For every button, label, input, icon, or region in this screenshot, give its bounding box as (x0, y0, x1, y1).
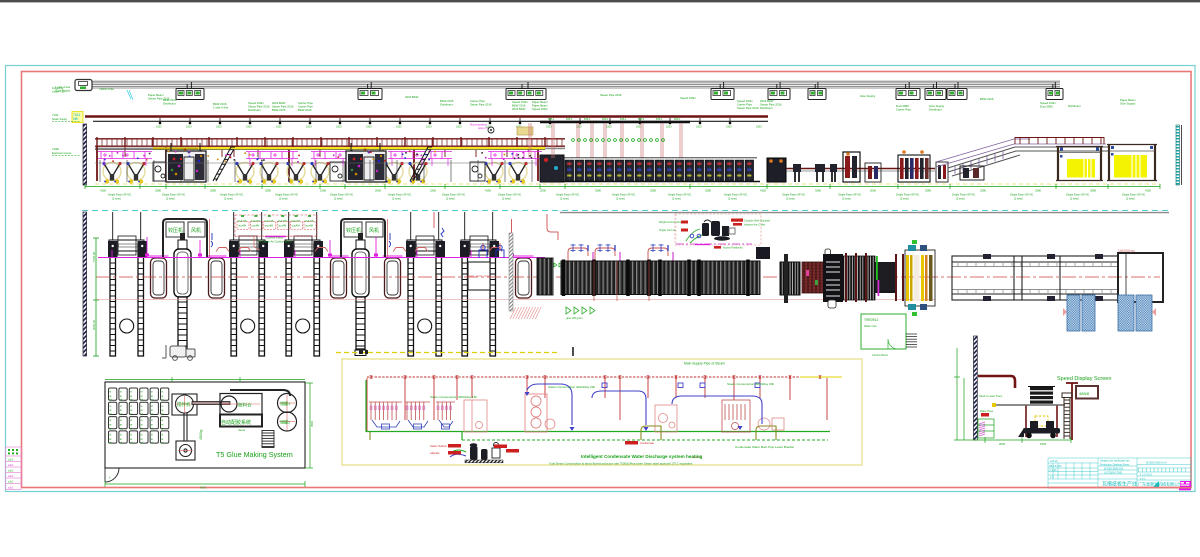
svg-text:Condensate: Condensate (640, 441, 655, 445)
svg-text:3280: 3280 (595, 189, 601, 193)
svg-text:Single Facer SF-NC: Single Facer SF-NC (952, 193, 975, 197)
svg-text:4150: 4150 (100, 189, 106, 193)
svg-text:st: st (141, 433, 143, 436)
svg-text:845.1: 845.1 (584, 117, 591, 121)
svg-text:Distributor: Distributor (929, 108, 942, 112)
svg-text:2000: 2000 (999, 442, 1006, 446)
svg-text:Advance line C side: Advance line C side (744, 224, 766, 227)
svg-text:2000: 2000 (870, 189, 876, 193)
svg-text:a1b2: a1b2 (8, 487, 14, 490)
svg-text:Adjuster: Adjuster (430, 451, 440, 455)
svg-text:Access Positioned: Access Positioned (723, 247, 743, 250)
svg-text:Equipment Layout: Equipment Layout (52, 152, 72, 155)
svg-text:1 2 3 4 5 6: 1 2 3 4 5 6 (1140, 474, 1152, 477)
svg-text:Single Facer SF-NC: Single Facer SF-NC (1066, 193, 1089, 197)
svg-text:Distributor: Distributor (248, 108, 261, 112)
svg-text:B&W 2016: B&W 2016 (980, 97, 994, 101)
svg-text:1503: 1503 (696, 126, 702, 129)
svg-text:4500: 4500 (310, 420, 314, 427)
svg-text:(2 sets): (2 sets) (446, 197, 455, 201)
svg-text:Water cool: Water cool (864, 324, 877, 328)
svg-text:a1b2: a1b2 (8, 464, 14, 467)
svg-text:T5 Glue Making System: T5 Glue Making System (216, 450, 293, 459)
svg-text:Single Facer SF-NC: Single Facer SF-NC (330, 193, 353, 197)
svg-text:Distributor: Distributor (163, 102, 176, 106)
svg-text:ar: ar (109, 395, 111, 398)
svg-text:st: st (130, 405, 132, 408)
svg-text:5050.66: 5050.66 (92, 319, 96, 330)
svg-text:Single Facer SF-NC: Single Facer SF-NC (1122, 193, 1145, 197)
svg-text:TRE0912: TRE0912 (864, 318, 878, 322)
svg-text:Single Facer SF-NC: Single Facer SF-NC (556, 193, 579, 197)
svg-text:3280: 3280 (980, 189, 986, 193)
svg-text:(2 sets): (2 sets) (1014, 197, 1023, 201)
svg-text:st: st (130, 433, 132, 436)
svg-text:845.1: 845.1 (656, 117, 663, 121)
svg-text:Steam Pipe 2016: Steam Pipe 2016 (737, 106, 759, 110)
svg-text:uuu4M: uuu4M (251, 224, 259, 228)
svg-text:Main Supply Pipe of Steam: Main Supply Pipe of Steam (684, 362, 725, 366)
svg-text:uuu4M: uuu4M (278, 224, 286, 228)
svg-text:Consider Wire Computer: Consider Wire Computer (744, 220, 771, 223)
svg-text:7168: 7168 (52, 147, 59, 151)
svg-text:uuu4M: uuu4M (305, 224, 313, 228)
svg-text:Water Hose: Water Hose (980, 410, 994, 413)
svg-text:Steam Consumption 4000t/day 20: Steam Consumption 4000t/day 20b (727, 382, 774, 386)
svg-text:1503: 1503 (726, 126, 732, 129)
svg-text:st: st (161, 419, 163, 422)
svg-text:st: st (151, 405, 153, 408)
svg-text:CHU78: CHU78 (264, 219, 273, 223)
svg-text:自动配胶系统: 自动配胶系统 (221, 419, 251, 426)
svg-text:铰压机: 铰压机 (346, 227, 361, 234)
svg-text:Steam Pipe 2016: Steam Pipe 2016 (600, 93, 622, 97)
svg-text:Single Facer SF-NC: Single Facer SF-NC (498, 193, 521, 197)
svg-text:5795.88: 5795.88 (92, 251, 96, 262)
svg-text:3280: 3280 (650, 189, 656, 193)
svg-text:铰压机: 铰压机 (168, 227, 183, 234)
svg-text:Single Facer SF-NC: Single Facer SF-NC (612, 193, 635, 197)
svg-text:1503: 1503 (426, 126, 432, 129)
svg-text:ar: ar (120, 409, 122, 412)
svg-text:9t/h: 9t/h (73, 117, 79, 121)
svg-text:Glue Supply: Glue Supply (1120, 102, 1136, 106)
svg-text:(2 sets): (2 sets) (112, 197, 121, 201)
svg-text:845.1: 845.1 (620, 117, 627, 121)
svg-text:Control Room: Control Room (266, 236, 284, 240)
svg-text:st: st (161, 433, 163, 436)
svg-text:845.1: 845.1 (674, 117, 681, 121)
svg-text:1503: 1503 (396, 126, 402, 129)
svg-text:(2 sets): (2 sets) (1126, 197, 1135, 201)
svg-text:glue 100 gram: glue 100 gram (566, 316, 583, 320)
svg-text:ar: ar (141, 424, 143, 427)
svg-text:2016 B&W: 2016 B&W (512, 107, 526, 111)
svg-text:1503: 1503 (276, 126, 282, 129)
svg-text:Single Facer SF-NC: Single Facer SF-NC (838, 193, 861, 197)
svg-text:st: st (141, 419, 143, 422)
svg-text:ar: ar (120, 438, 122, 441)
svg-text:3280: 3280 (705, 189, 711, 193)
svg-text:Intelligent Condensate Water D: Intelligent Condensate Water Discharge s… (581, 454, 703, 459)
svg-text:CHU78: CHU78 (278, 219, 287, 223)
svg-text:3280: 3280 (155, 189, 161, 193)
svg-text:WJ150-2500-150: WJ150-2500-150 (1104, 468, 1124, 471)
svg-text:Speed Display Screen: Speed Display Screen (1057, 376, 1111, 382)
svg-text:ar: ar (120, 424, 122, 427)
svg-text:ar: ar (109, 409, 111, 412)
svg-text:st: st (120, 419, 122, 422)
svg-text:ar: ar (141, 438, 143, 441)
svg-text:a1b2: a1b2 (8, 481, 14, 484)
svg-text:1503: 1503 (546, 126, 552, 129)
svg-text:瓦楷纸板生产线: 瓦楷纸板生产线 (1102, 481, 1137, 488)
svg-text:AB CD 123: AB CD 123 (1049, 465, 1062, 468)
svg-text:ar: ar (130, 424, 132, 427)
svg-text:1503: 1503 (456, 126, 462, 129)
svg-text:Supply List Line: Supply List Line (659, 229, 677, 232)
svg-text:a1b2: a1b2 (8, 459, 14, 462)
svg-text:(2 sets): (2 sets) (334, 197, 343, 201)
svg-text:2250: 2250 (430, 189, 436, 193)
svg-text:Single Facer SF-NC: Single Facer SF-NC (668, 193, 691, 197)
svg-text:广东省東光机械有限公司: 广东省東光机械有限公司 (1138, 481, 1182, 487)
svg-text:CHU78: CHU78 (238, 219, 247, 223)
svg-text:845.1: 845.1 (602, 117, 609, 121)
svg-text:st: st (109, 433, 111, 436)
svg-text:C 1 ab: C 1 ab (1049, 469, 1057, 472)
svg-text:Glue Supply: Glue Supply (860, 94, 876, 98)
svg-text:3280: 3280 (210, 189, 216, 193)
svg-text:(2 sets): (2 sets) (224, 197, 233, 201)
svg-text:Distributor: Distributor (1068, 104, 1081, 108)
svg-text:ar: ar (141, 409, 143, 412)
svg-text:Condensate Water Main Pipe Low: Condensate Water Main Pipe Lower Bracket (735, 445, 794, 449)
svg-text:ar: ar (151, 409, 153, 412)
svg-text:2000: 2000 (375, 189, 381, 193)
svg-text:a b c: a b c (1140, 478, 1146, 481)
svg-text:st: st (109, 405, 111, 408)
svg-text:No Gerber An Cushion Electri: No Gerber An Cushion Electri (258, 239, 292, 243)
svg-text:1503: 1503 (336, 126, 342, 129)
svg-text:st: st (151, 419, 153, 422)
svg-text:ar: ar (120, 395, 122, 398)
svg-text:4 4: 4 4 (1050, 476, 1054, 479)
svg-text:845.1: 845.1 (566, 117, 573, 121)
svg-text:ar: ar (109, 424, 111, 427)
svg-text:Speed 150m: Speed 150m (680, 96, 697, 100)
svg-text:Carrier Pipe: Carrier Pipe (99, 87, 114, 91)
svg-text:845.1: 845.1 (638, 117, 645, 121)
svg-text:ar: ar (161, 409, 163, 412)
svg-text:3280: 3280 (815, 189, 821, 193)
svg-text:uuu4M: uuu4M (238, 224, 246, 228)
svg-text:(2 sets): (2 sets) (842, 197, 851, 201)
svg-text:LSY2500-179/B: LSY2500-179/B (1104, 472, 1122, 475)
svg-text:st: st (141, 391, 143, 394)
svg-text:(2 sets): (2 sets) (166, 197, 175, 201)
svg-text:1500: 1500 (320, 189, 326, 193)
svg-text:ar: ar (151, 438, 153, 441)
svg-text:st: st (120, 433, 122, 436)
svg-text:Production Drawing Sheet: Production Drawing Sheet (1100, 463, 1129, 466)
svg-text:Single Facer SF-NC: Single Facer SF-NC (388, 193, 411, 197)
svg-text:uuu4M: uuu4M (292, 224, 300, 228)
svg-text:3280: 3280 (265, 189, 271, 193)
svg-text:(2 sets): (2 sets) (672, 197, 681, 201)
svg-text:2000: 2000 (540, 189, 546, 193)
svg-text:风机: 风机 (369, 227, 379, 234)
svg-text:Total Steam Consumption at abo: Total Steam Consumption at about 8tons/p… (549, 462, 693, 466)
svg-text:1503: 1503 (756, 126, 762, 129)
svg-text:st: st (120, 391, 122, 394)
svg-text:储罐1: 储罐1 (280, 400, 291, 406)
svg-text:(2 sets): (2 sets) (786, 197, 795, 201)
svg-text:ar: ar (141, 395, 143, 398)
svg-text:(2 sets): (2 sets) (279, 197, 288, 201)
svg-text:Distributor: Distributor (440, 103, 453, 107)
svg-text:st: st (151, 433, 153, 436)
svg-text:(2 sets): (2 sets) (502, 197, 511, 201)
svg-text:st: st (161, 391, 163, 394)
svg-text:B&W 2016: B&W 2016 (298, 108, 312, 112)
svg-text:Single Facer SF-NC: Single Facer SF-NC (896, 193, 919, 197)
svg-text:1503: 1503 (216, 126, 222, 129)
svg-text:1503: 1503 (606, 126, 612, 129)
svg-text:Single Facer SF-NC: Single Facer SF-NC (724, 193, 747, 197)
svg-text:Carrier Pipe: Carrier Pipe (896, 108, 911, 112)
svg-text:a1b2: a1b2 (8, 475, 14, 478)
svg-text:st: st (120, 405, 122, 408)
svg-text:1503: 1503 (156, 126, 162, 129)
svg-text:1503: 1503 (666, 126, 672, 129)
svg-text:st: st (109, 391, 111, 394)
svg-text:Distributor: Distributor (760, 106, 773, 110)
svg-text:ar: ar (161, 438, 163, 441)
svg-text:Duct 2850: Duct 2850 (1040, 105, 1053, 109)
svg-text:3280: 3280 (1035, 189, 1041, 193)
svg-text:Weight Control Valve: Weight Control Valve (659, 221, 682, 224)
svg-text:Carrier 7357: Carrier 7357 (52, 91, 66, 94)
svg-text:Single Facer SF-NC: Single Facer SF-NC (442, 193, 465, 197)
svg-text:3280: 3280 (925, 189, 931, 193)
svg-text:B&W 2016: B&W 2016 (272, 108, 286, 112)
svg-text:风机: 风机 (191, 227, 201, 234)
svg-text:uuu4M: uuu4M (265, 224, 273, 228)
svg-text:(2 sets): (2 sets) (728, 197, 737, 201)
svg-text:1503: 1503 (306, 126, 312, 129)
svg-text:st: st (130, 419, 132, 422)
svg-text:3280: 3280 (1090, 189, 1096, 193)
svg-text:a1b2: a1b2 (8, 470, 14, 473)
svg-text:CHU78: CHU78 (291, 219, 300, 223)
svg-text:Single Facer SF-NC: Single Facer SF-NC (220, 193, 243, 197)
svg-text:Jiangsu city cardboard sys: Jiangsu city cardboard sys (1100, 460, 1130, 463)
svg-text:Steam Consumption 4000t/day 20: Steam Consumption 4000t/day 20b (548, 385, 595, 389)
svg-text:ar: ar (151, 424, 153, 427)
svg-text:Single Facer SF-NC: Single Facer SF-NC (108, 193, 131, 197)
svg-text:搅拌机: 搅拌机 (177, 401, 191, 408)
svg-text:ar: ar (109, 438, 111, 441)
svg-text:st: st (161, 405, 163, 408)
svg-text:Speed 150m: Speed 150m (532, 107, 549, 111)
svg-text:st: st (130, 391, 132, 394)
svg-text:1400/52rpm: 1400/52rpm (1118, 249, 1135, 253)
svg-text:Hand to Lower Trans: Hand to Lower Trans (979, 395, 1003, 398)
svg-text:ar: ar (130, 395, 132, 398)
svg-text:1500: 1500 (1040, 442, 1047, 446)
svg-text:ar: ar (151, 395, 153, 398)
svg-text:Steam Pipe 2016: Steam Pipe 2016 (470, 103, 492, 107)
svg-text:st: st (151, 391, 153, 394)
svg-text:CHU78: CHU78 (305, 219, 314, 223)
svg-text:(2 sets): (2 sets) (1070, 197, 1079, 201)
svg-text:Steam Suction: Steam Suction (430, 444, 447, 448)
svg-text:(2 sets): (2 sets) (616, 197, 625, 201)
svg-text:1503: 1503 (186, 126, 192, 129)
svg-text:Single Facer SF-NC: Single Facer SF-NC (162, 193, 185, 197)
svg-text:4150: 4150 (760, 189, 766, 193)
svg-text:4150: 4150 (1145, 189, 1151, 193)
svg-text:845.1: 845.1 (548, 117, 555, 121)
svg-text:粉料仓: 粉料仓 (238, 402, 252, 409)
svg-text:(2 sets): (2 sets) (956, 197, 965, 201)
svg-text:ar: ar (161, 424, 163, 427)
svg-text:WJ150+2500+2+V: WJ150+2500+2+V (1146, 462, 1167, 465)
svg-text:1 side 4 feet: 1 side 4 feet (213, 106, 228, 110)
svg-text:Control Room: Control Room (872, 353, 888, 357)
svg-text:ar: ar (161, 395, 163, 398)
svg-text:Single Facer SF-NC: Single Facer SF-NC (275, 193, 298, 197)
svg-text:1503: 1503 (366, 126, 372, 129)
svg-text:A B ab: A B ab (1050, 460, 1058, 463)
svg-text:储罐2: 储罐2 (280, 419, 291, 425)
svg-text:st: st (109, 419, 111, 422)
svg-text:(2 sets): (2 sets) (560, 197, 569, 201)
svg-text:1503: 1503 (246, 126, 252, 129)
svg-text:4sets: 4sets (238, 428, 246, 432)
svg-text:4000kg: 4000kg (199, 429, 203, 440)
svg-text:CHU78: CHU78 (251, 219, 260, 223)
svg-text:ar: ar (130, 438, 132, 441)
svg-text:4150: 4150 (485, 189, 491, 193)
svg-text:Single Facer SF-NC: Single Facer SF-NC (782, 193, 805, 197)
svg-text:(2 sets): (2 sets) (392, 197, 401, 201)
svg-text:Steam Consumption 4000t/day 15: Steam Consumption 4000t/day 15b (430, 395, 477, 399)
svg-text:2016 B&W: 2016 B&W (405, 95, 419, 99)
svg-text:Single Facer SF-NC: Single Facer SF-NC (1010, 193, 1033, 197)
svg-text:7161: 7161 (52, 113, 59, 117)
svg-text:9000: 9000 (200, 486, 207, 490)
svg-text:ar: ar (130, 409, 132, 412)
svg-text:Steam Supply: Steam Supply (52, 118, 68, 121)
svg-text:485/8: 485/8 (1079, 391, 1090, 396)
svg-text:st: st (141, 405, 143, 408)
svg-text:(2 sets): (2 sets) (900, 197, 909, 201)
